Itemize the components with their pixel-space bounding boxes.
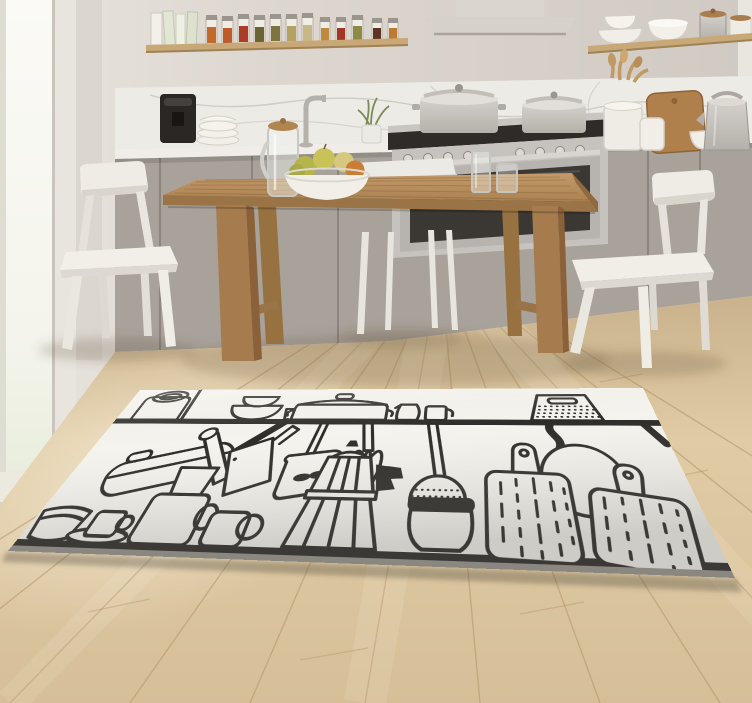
kitchen-utensil-rug [8,388,735,578]
coffee-machine [160,94,196,143]
stacked-bowls [598,15,642,44]
rug-artwork [8,388,735,578]
window-frame-edge [52,0,55,502]
kitchen-photo [0,0,752,703]
white-bowls [648,19,688,40]
steel-canister [700,9,726,41]
short-glass [497,164,517,192]
tall-glass [472,151,490,192]
window-glass [0,0,52,472]
kitchen-scene [0,0,752,703]
apple-yellow [313,148,335,170]
white-jar [640,118,664,150]
window-left-jamb [0,0,6,472]
